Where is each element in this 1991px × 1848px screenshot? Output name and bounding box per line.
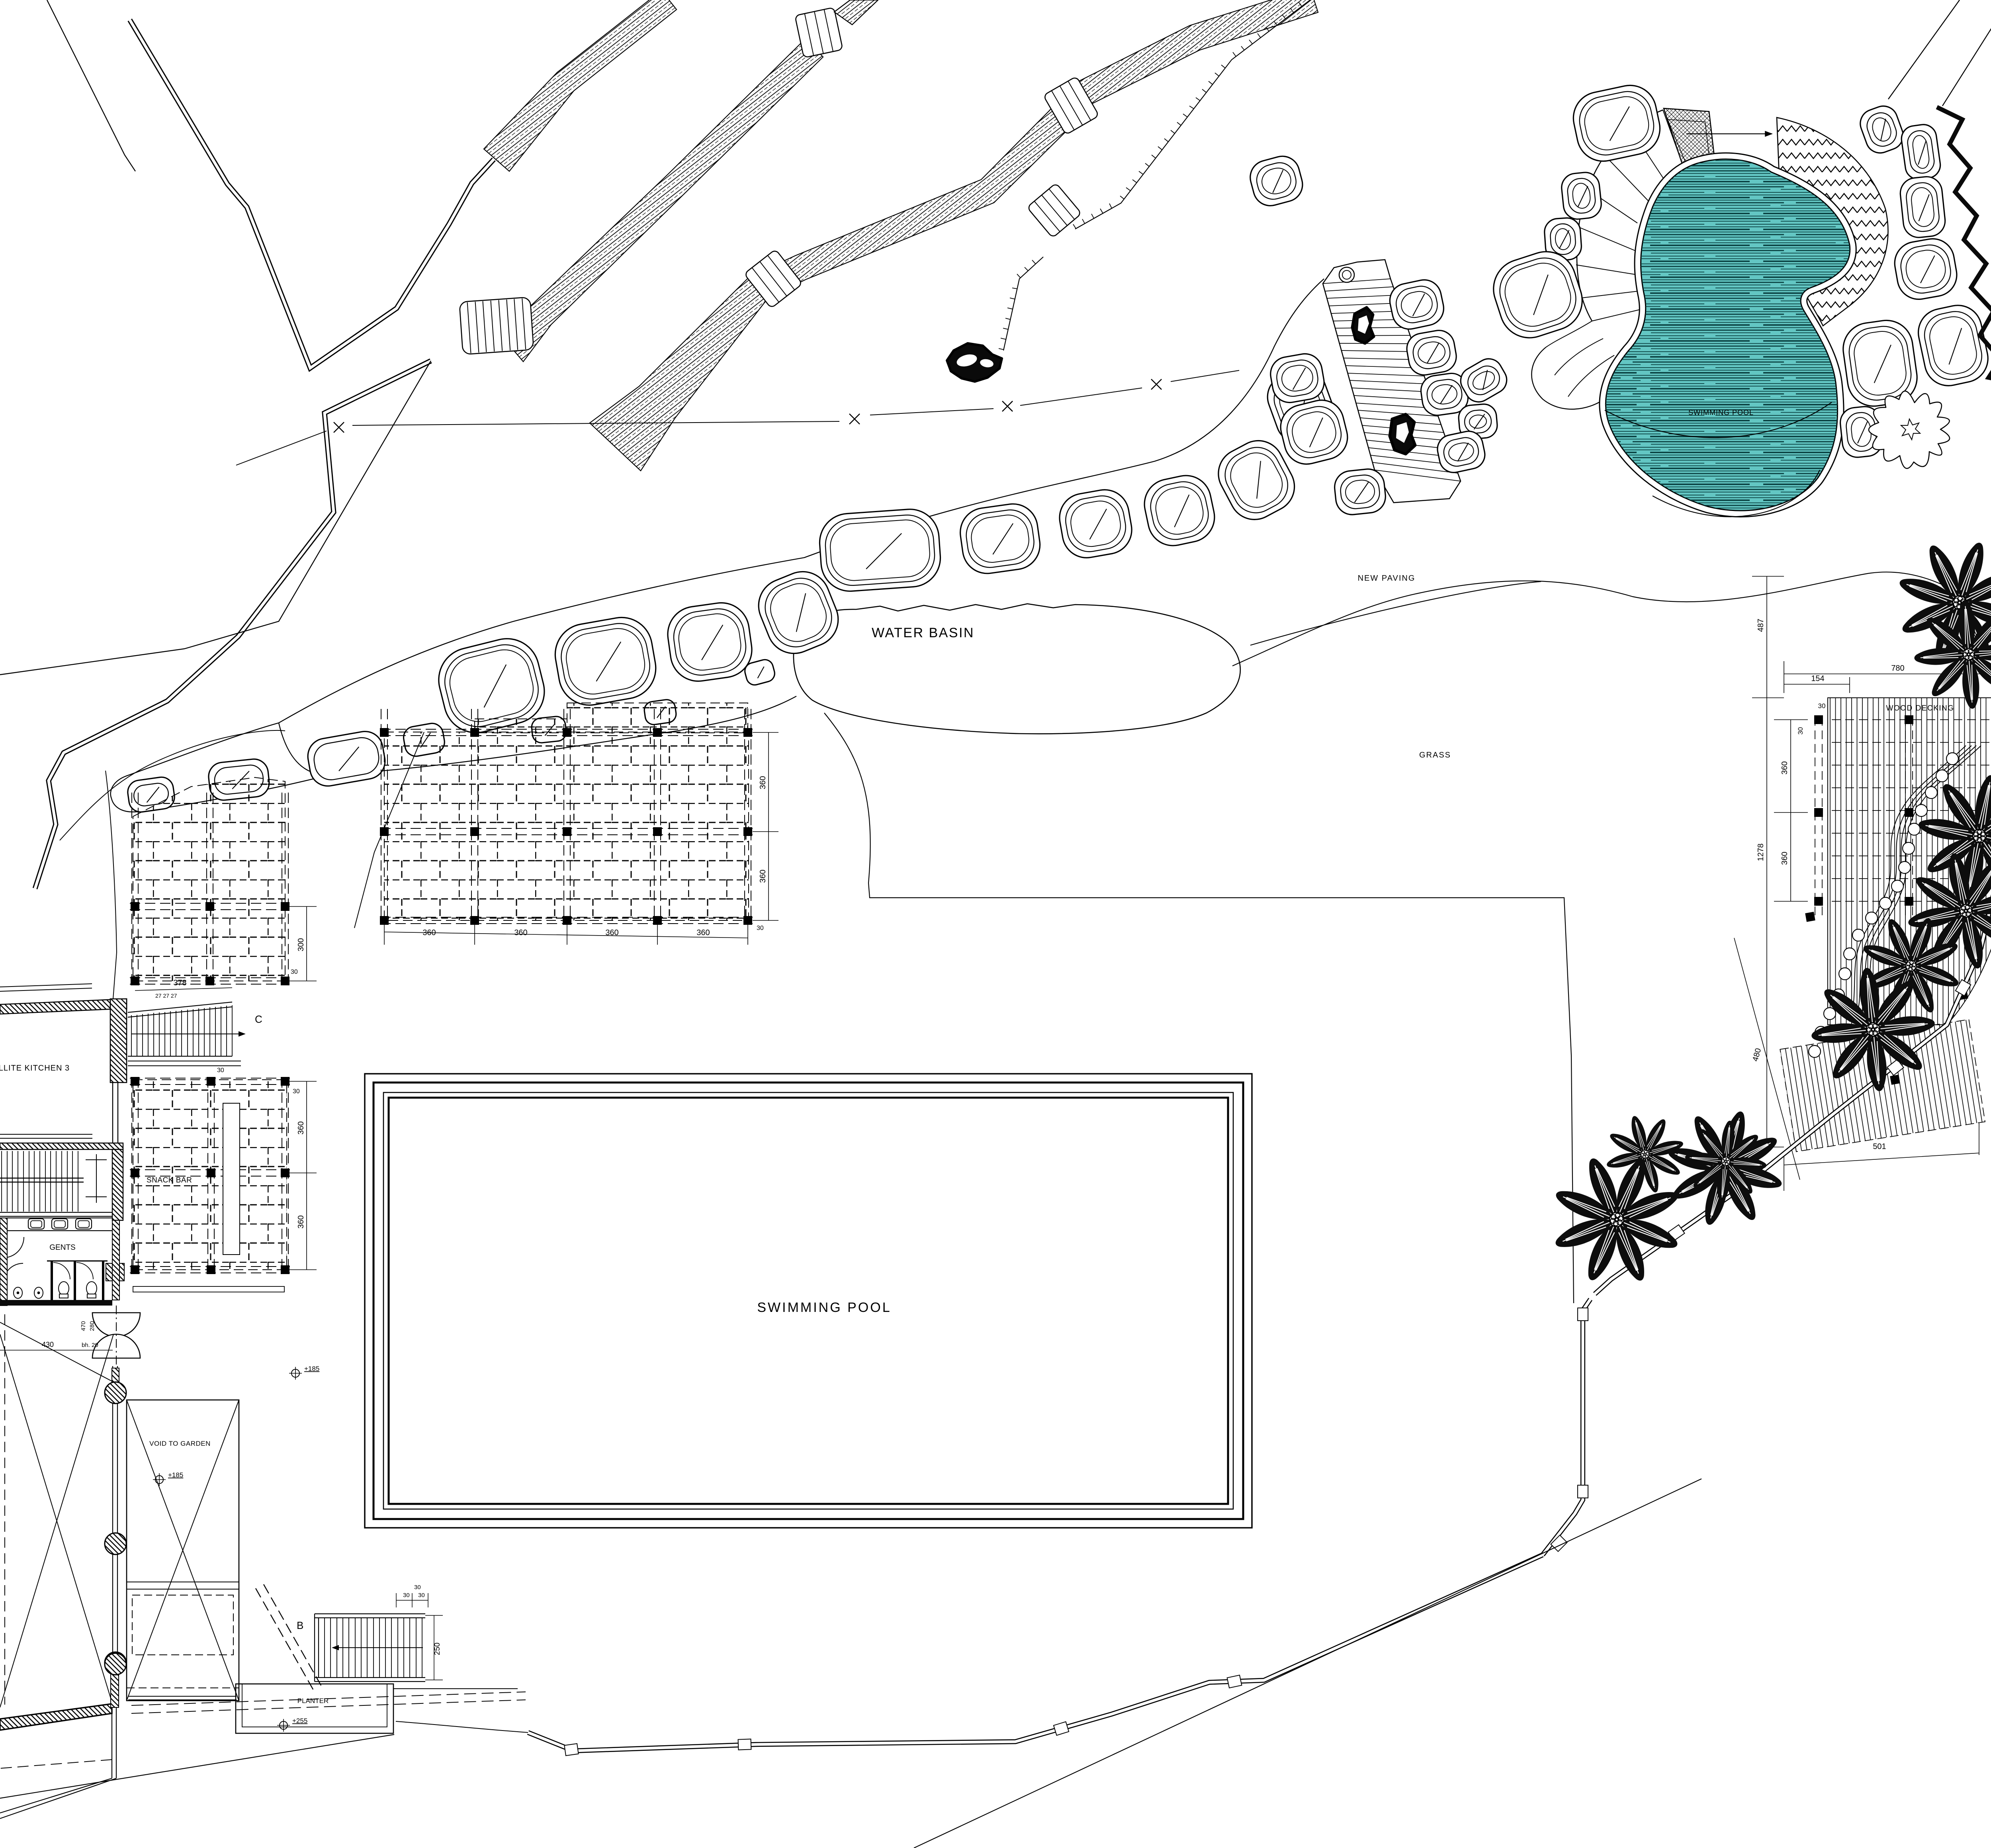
svg-text:+255: +255 [292, 1717, 307, 1725]
svg-text:360: 360 [605, 928, 618, 937]
svg-text:PLANTER: PLANTER [297, 1697, 329, 1705]
svg-text:360: 360 [1780, 761, 1789, 774]
svg-text:GENTS: GENTS [49, 1243, 75, 1252]
svg-text:30: 30 [291, 969, 298, 975]
svg-text:C: C [255, 1013, 262, 1025]
svg-text:360: 360 [759, 776, 767, 789]
svg-text:+185: +185 [304, 1365, 319, 1372]
svg-text:360: 360 [297, 1121, 305, 1134]
svg-text:30: 30 [217, 1067, 224, 1074]
svg-text:bh. 20: bh. 20 [82, 1342, 98, 1349]
svg-text:SWIMMING POOL: SWIMMING POOL [757, 1300, 891, 1315]
svg-text:154: 154 [1811, 674, 1824, 683]
svg-text:SATELLITE KITCHEN 3: SATELLITE KITCHEN 3 [0, 1064, 70, 1073]
svg-text:+185: +185 [168, 1471, 183, 1479]
svg-text:360: 360 [422, 928, 436, 937]
svg-text:300: 300 [297, 938, 305, 951]
svg-text:30: 30 [757, 925, 764, 932]
svg-text:360: 360 [759, 869, 767, 883]
svg-text:360: 360 [297, 1215, 305, 1228]
svg-text:30: 30 [293, 1088, 300, 1095]
svg-text:B: B [297, 1619, 303, 1631]
svg-text:1278: 1278 [1756, 844, 1765, 861]
svg-text:501: 501 [1873, 1142, 1886, 1151]
svg-text:360: 360 [514, 928, 527, 937]
svg-text:487: 487 [1756, 619, 1765, 632]
svg-text:430: 430 [42, 1341, 54, 1349]
svg-text:WOOD DECKING: WOOD DECKING [1886, 704, 1954, 713]
svg-text:NEW PAVING: NEW PAVING [1358, 574, 1416, 583]
svg-text:30: 30 [1797, 727, 1804, 735]
svg-text:470: 470 [80, 1321, 87, 1331]
svg-text:250: 250 [433, 1642, 442, 1655]
svg-text:780: 780 [1891, 664, 1904, 673]
svg-text:280: 280 [89, 1321, 96, 1331]
svg-text:27 27 27: 27 27 27 [155, 993, 177, 999]
svg-text:378: 378 [173, 979, 186, 987]
svg-text:SWIMMING POOL: SWIMMING POOL [1688, 409, 1754, 417]
svg-text:30: 30 [414, 1584, 421, 1591]
svg-text:30: 30 [1818, 702, 1826, 710]
svg-text:VOID TO GARDEN: VOID TO GARDEN [149, 1440, 211, 1447]
svg-text:SNACK BAR: SNACK BAR [147, 1176, 192, 1184]
svg-text:WATER BASIN: WATER BASIN [872, 625, 974, 640]
svg-text:360: 360 [696, 928, 710, 937]
svg-text:GRASS: GRASS [1419, 751, 1451, 760]
svg-text:360: 360 [1780, 852, 1789, 865]
svg-text:30: 30 [403, 1592, 410, 1599]
svg-text:30: 30 [418, 1592, 425, 1599]
